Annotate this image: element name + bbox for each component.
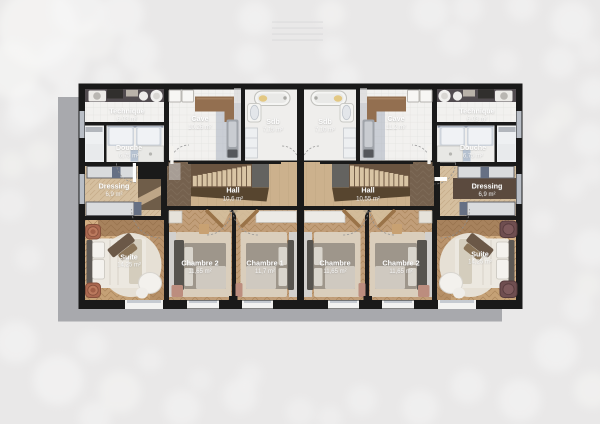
svg-text:Suite: Suite xyxy=(120,253,138,262)
svg-text:Suite: Suite xyxy=(471,250,489,259)
svg-text:11,65 m²: 11,65 m² xyxy=(389,269,412,275)
svg-text:Hall: Hall xyxy=(361,186,374,195)
svg-text:Cave: Cave xyxy=(387,114,404,123)
svg-text:7,15 m²: 7,15 m² xyxy=(263,128,283,134)
svg-text:Douche: Douche xyxy=(460,143,486,152)
svg-text:Chambre 2: Chambre 2 xyxy=(181,259,218,268)
svg-text:7,10 m²: 7,10 m² xyxy=(315,128,335,134)
svg-text:11,2 m²: 11,2 m² xyxy=(386,125,406,131)
svg-text:Chambre: Chambre xyxy=(319,259,350,268)
svg-text:11,7 m²: 11,7 m² xyxy=(255,269,275,275)
svg-text:10,6 m²: 10,6 m² xyxy=(223,197,243,203)
svg-text:Sdb: Sdb xyxy=(318,117,332,126)
svg-text:6,9 m²: 6,9 m² xyxy=(105,192,122,198)
svg-text:Douche: Douche xyxy=(116,143,142,152)
svg-text:6,75 m²: 6,75 m² xyxy=(119,154,139,160)
svg-text:11,65 m²: 11,65 m² xyxy=(188,269,211,275)
svg-text:Sdb: Sdb xyxy=(266,117,280,126)
svg-text:10,55 m²: 10,55 m² xyxy=(356,197,380,203)
svg-text:Technique: Technique xyxy=(459,107,494,116)
svg-text:6,9 m²: 6,9 m² xyxy=(478,192,495,198)
svg-text:Dressing: Dressing xyxy=(472,182,503,191)
svg-text:6.03 m²: 6.03 m² xyxy=(467,117,487,123)
svg-text:6.03 m²: 6.03 m² xyxy=(117,117,137,123)
svg-text:Dressing: Dressing xyxy=(99,182,130,191)
svg-text:Hall: Hall xyxy=(226,186,239,195)
svg-text:14,25 m²: 14,25 m² xyxy=(117,263,141,269)
svg-text:10.26 m²: 10.26 m² xyxy=(188,125,212,131)
svg-text:Chambre 1: Chambre 1 xyxy=(246,259,283,268)
svg-text:Technique: Technique xyxy=(109,107,144,116)
svg-text:14,25 m²: 14,25 m² xyxy=(468,260,492,266)
svg-text:11,65 m²: 11,65 m² xyxy=(323,269,346,275)
svg-text:Chambre 2: Chambre 2 xyxy=(382,259,419,268)
svg-text:6,75 m²: 6,75 m² xyxy=(463,154,483,160)
svg-text:Cave: Cave xyxy=(191,114,208,123)
